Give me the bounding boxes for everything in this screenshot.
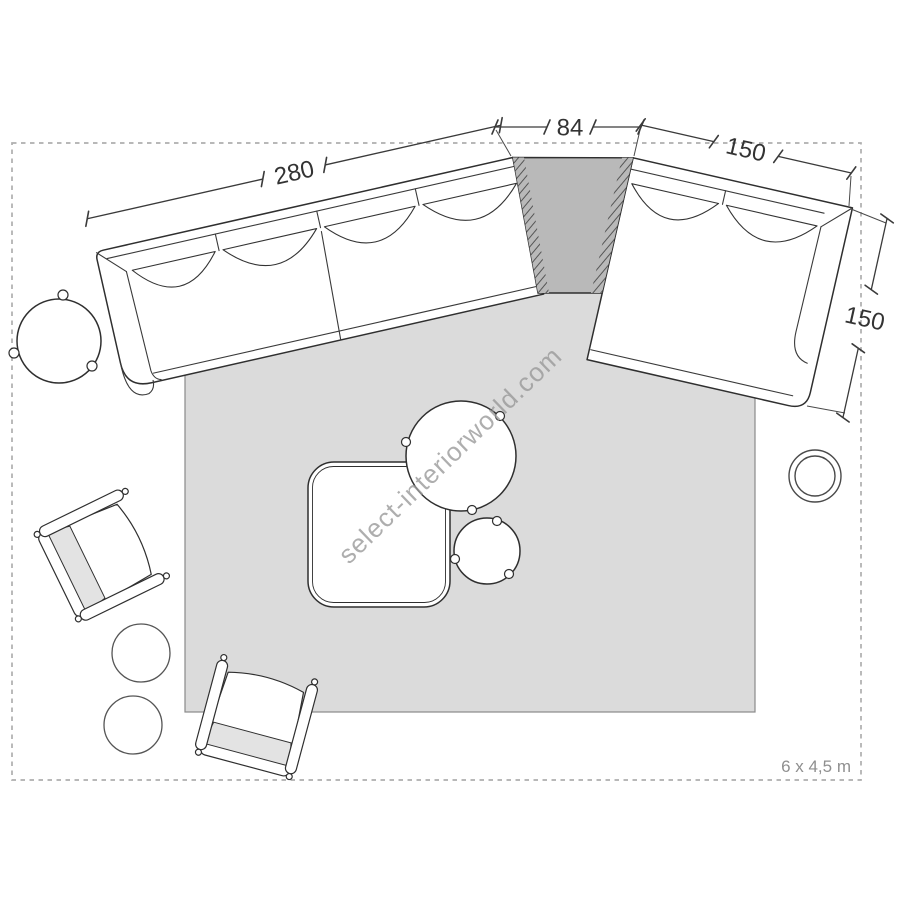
dim-150w-line-b (778, 156, 851, 173)
dim-150w-tick-2 (709, 134, 718, 149)
dimension-corner: 84 (492, 115, 644, 142)
floorplan-svg: 280 84 150 150 select-interiorworld.com … (0, 0, 900, 900)
extension-line-5 (807, 406, 845, 413)
extension-line-4 (851, 209, 886, 223)
round-small-knob-3 (505, 570, 514, 579)
side-table-left-knob-3 (87, 361, 97, 371)
planter-ring (789, 450, 841, 502)
dim-280-line-b (325, 125, 501, 165)
room-size-label: 6 x 4,5 m (781, 757, 851, 776)
round-large-knob-3 (468, 506, 477, 515)
round-small-knob-1 (493, 517, 502, 526)
pouf-1 (112, 624, 170, 682)
dim-150w-line-a (641, 125, 714, 142)
planter-ring-outer (789, 450, 841, 502)
dim-150d-line-a (871, 218, 887, 289)
dim-280-tick-3 (321, 157, 330, 172)
dim-280-tick-2 (258, 172, 267, 187)
dim-150d-tick-4 (835, 413, 850, 422)
dim-150d-tick-3 (851, 344, 866, 353)
side-table-left-knob-1 (58, 290, 68, 300)
side-table-left (9, 290, 101, 383)
floorplan-canvas: 280 84 150 150 select-interiorworld.com … (0, 0, 900, 900)
dim-150w-tick-3 (774, 149, 783, 164)
dim-280-tick-1 (83, 211, 92, 226)
dim-label-280: 280 (272, 155, 317, 190)
extension-line-3 (849, 176, 851, 206)
dim-280-line-a (87, 179, 263, 219)
dim-150d-line-b (843, 348, 858, 417)
pouf-2 (104, 696, 162, 754)
round-large-knob-1 (402, 438, 411, 447)
armchair-1 (32, 486, 171, 625)
round-small-knob-2 (451, 555, 460, 564)
dim-150w-tick-1 (636, 117, 645, 132)
dim-label-150-depth: 150 (842, 301, 887, 336)
dim-label-84: 84 (557, 115, 584, 142)
dim-label-150-width: 150 (723, 132, 768, 167)
side-table-left-knob-2 (9, 348, 19, 358)
dim-150d-tick-2 (864, 285, 879, 294)
side-table-left-top (17, 299, 101, 383)
